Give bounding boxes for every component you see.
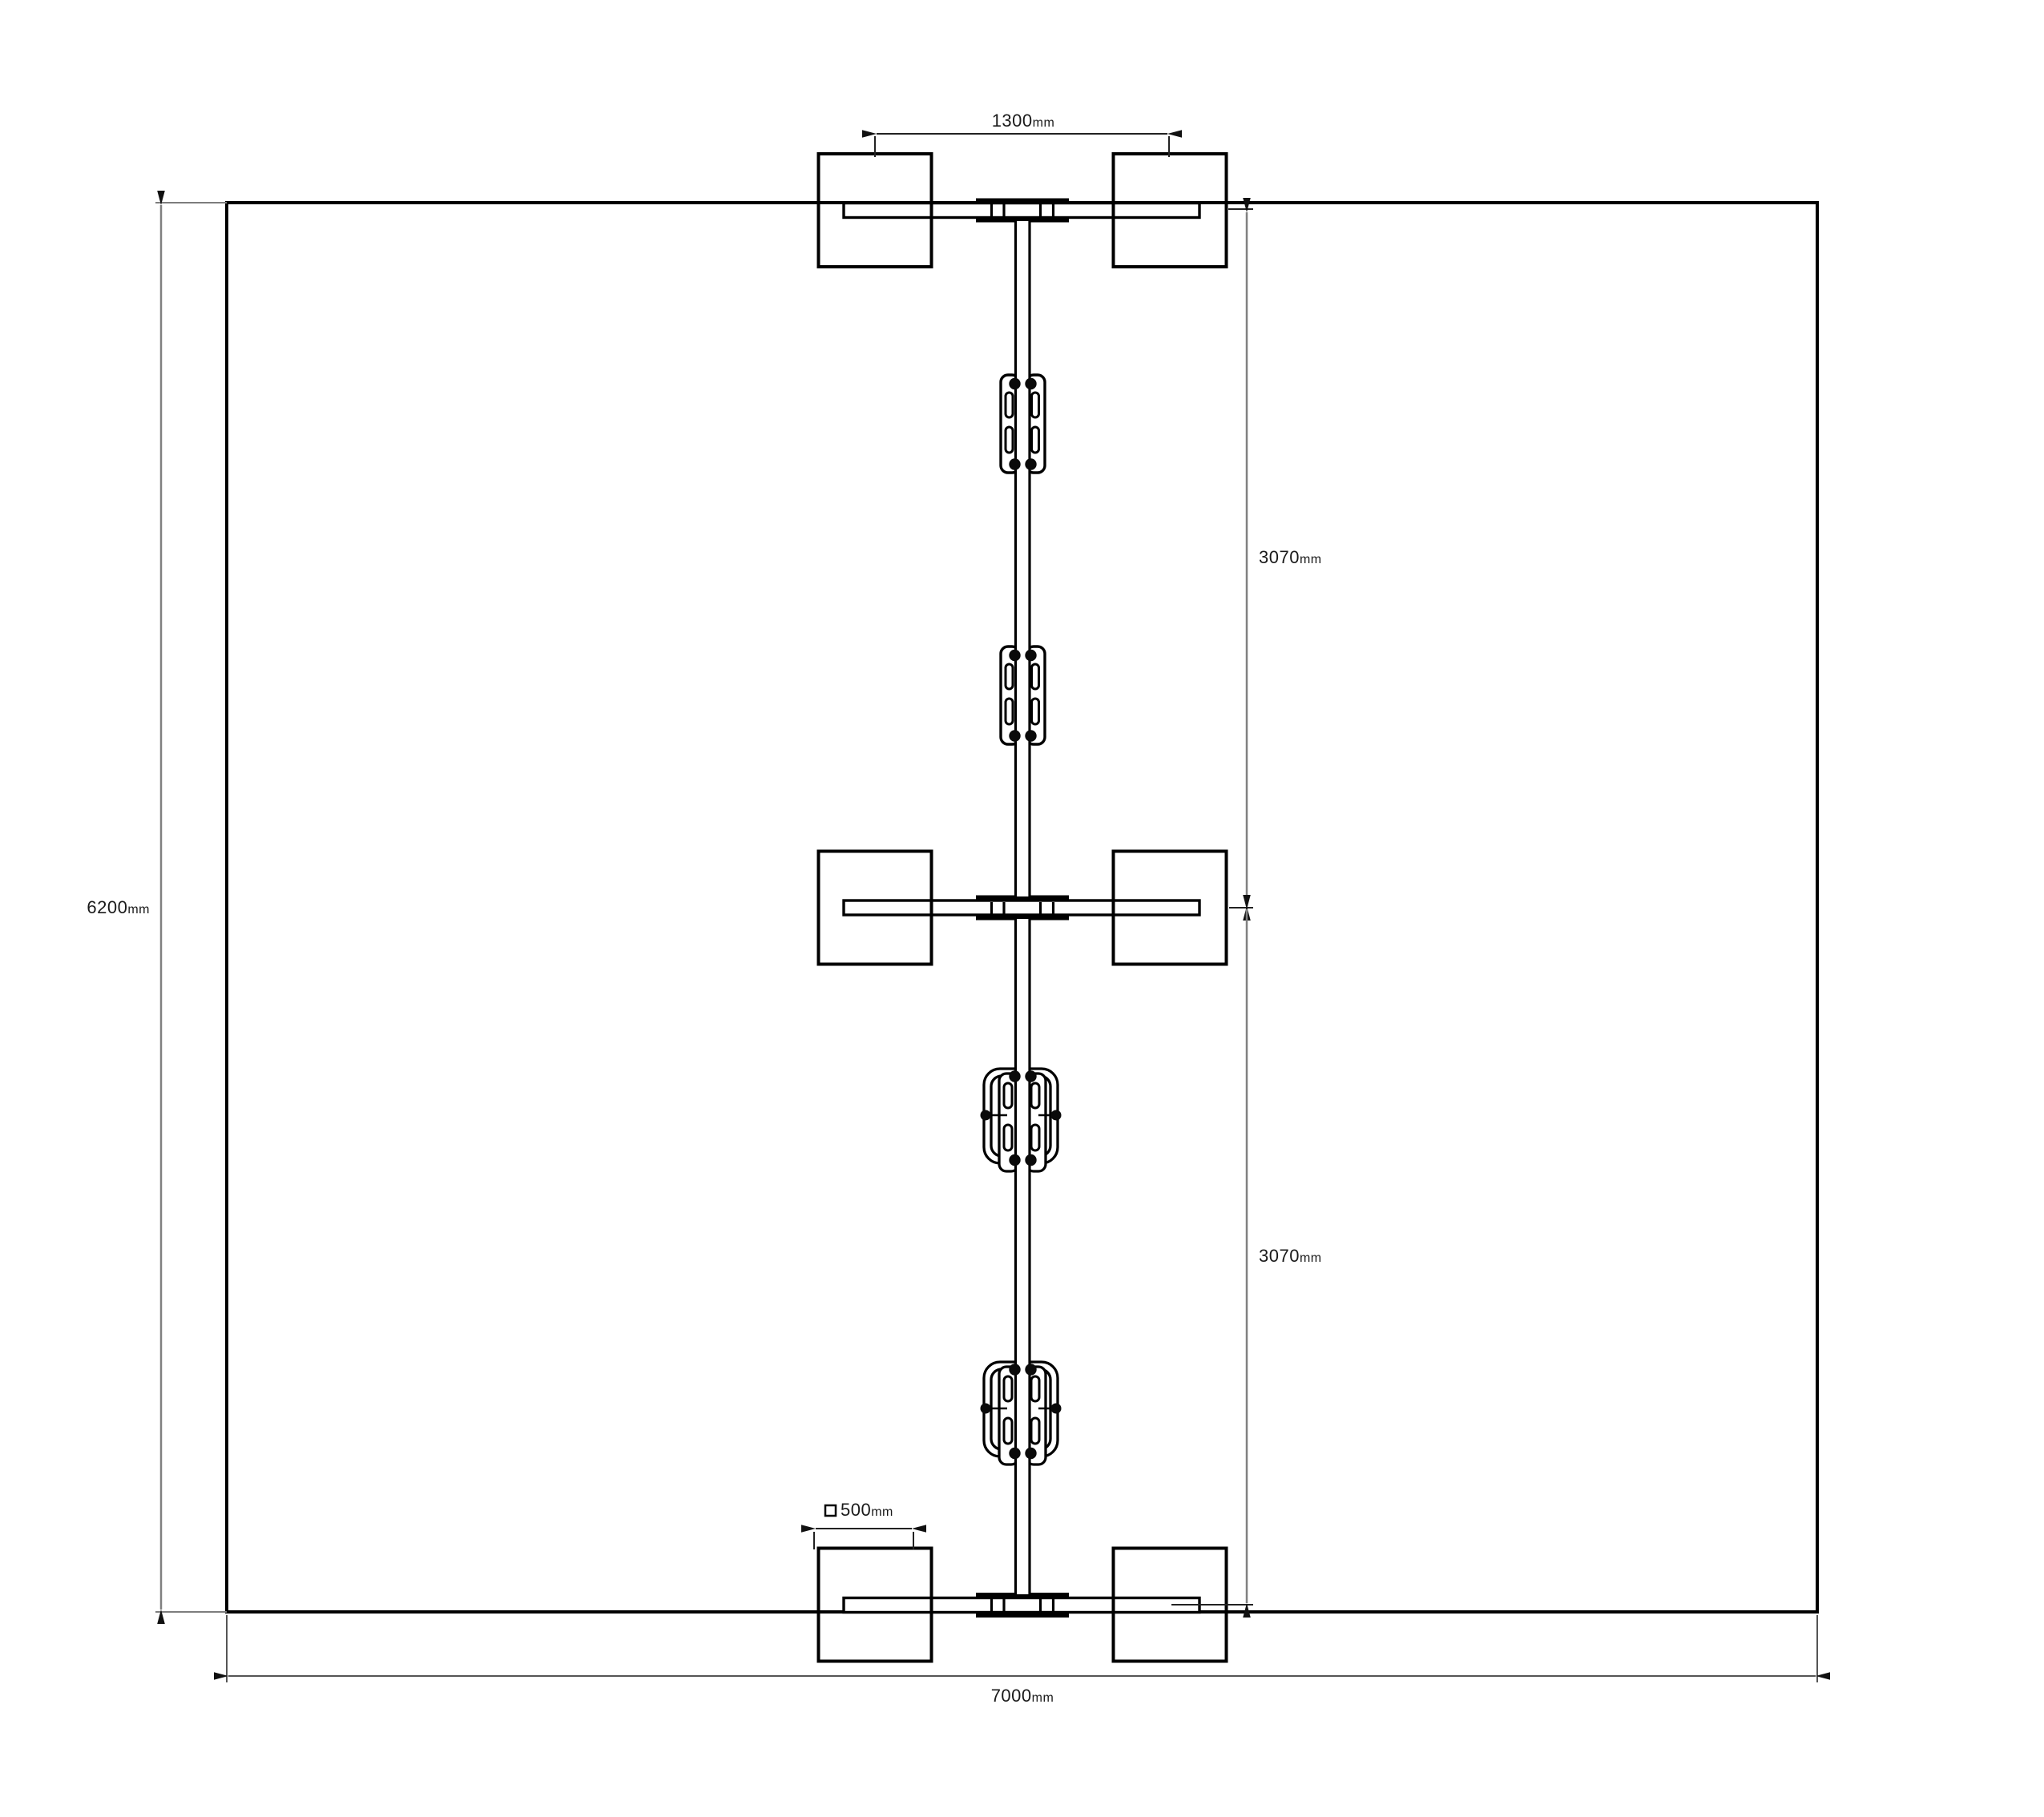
dimension-label: 500mm	[841, 1500, 893, 1520]
dim-top-spacing: 1300mm	[875, 111, 1169, 157]
spreader-beam-top	[844, 203, 1199, 218]
spreader-beam-middle	[844, 900, 1199, 915]
foundation-plan	[227, 154, 1817, 1662]
drawing-canvas: 1300mm 6200mm 3070mm 3070mm 7000mm 500mm	[0, 0, 2044, 1817]
dimension-label: 6200mm	[87, 897, 150, 917]
dim-upper-bay: 3070mm	[1228, 209, 1322, 908]
dim-pad-size: 500mm	[814, 1500, 913, 1549]
dimension-label: 7000mm	[991, 1686, 1054, 1706]
dim-overall-height: 6200mm	[87, 203, 227, 1612]
dimension-label: 3070mm	[1259, 1246, 1322, 1266]
dimension-label: 1300mm	[992, 111, 1055, 131]
spreader-beam-bottom	[844, 1598, 1199, 1613]
square-symbol-icon	[825, 1505, 836, 1516]
dim-lower-bay: 3070mm	[1171, 909, 1322, 1605]
dimension-label: 3070mm	[1259, 547, 1322, 567]
dim-overall-width: 7000mm	[227, 1615, 1817, 1706]
